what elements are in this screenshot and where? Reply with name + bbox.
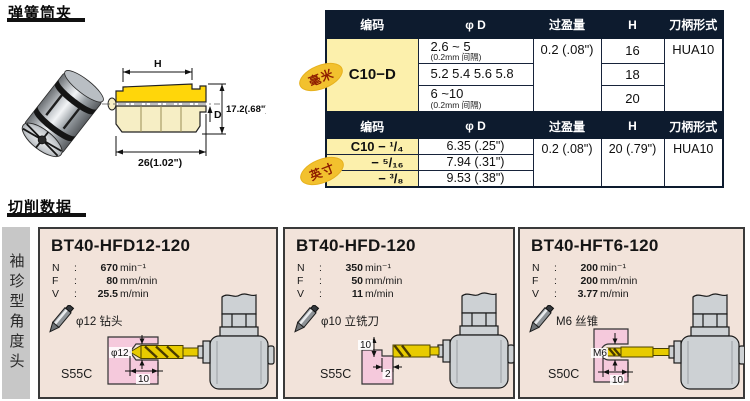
cut-diameter-label: φ12 (111, 348, 129, 359)
angle-head-illustration (669, 294, 744, 389)
inch-table-header-row: 编码 φ D 过盈量 H 刀柄形式 (326, 114, 723, 138)
code-value: C10 − ¹/₄ (326, 138, 418, 154)
spec-value: 200 (566, 262, 598, 275)
dim-h-label: H (154, 58, 162, 70)
shank-value: HUA10 (664, 38, 723, 112)
spec-row-n: N:350min⁻¹ (297, 262, 402, 275)
milling-diagram: 10 2 S55C (286, 282, 514, 396)
sidebar-label: 袖珍型角度头 (6, 253, 27, 373)
h-value: 18 (601, 63, 664, 85)
collets-title-underline (7, 18, 85, 22)
panel-title: BT40-HFD12-120 (51, 236, 190, 256)
inch-table: 编码 φ D 过盈量 H 刀柄形式 C10 − ¹/₄ 6.35 (.25") … (325, 113, 724, 188)
cutting-data-panel-drill: BT40-HFD12-120 N:670min⁻¹ F:80mm/min V:2… (38, 227, 278, 399)
dim-total-width: 26(1.02") (138, 157, 182, 169)
diameter-step-note: (0.2mm 间隔) (431, 53, 529, 62)
tapping-diagram: M6 10 S50C (521, 282, 744, 396)
angle-head-illustration (438, 293, 514, 388)
diameter-step-note: (0.2mm 间隔) (431, 101, 529, 110)
h-value: 16 (601, 38, 664, 63)
material-label: S50C (548, 367, 579, 381)
diameter-value: 9.53 (.38") (418, 170, 533, 187)
interference-value: 0.2 (.08") (533, 138, 601, 187)
metric-table: 编码 φ D 过盈量 H 刀柄形式 C10−D 2.6 ~ 5 (0.2mm 间… (325, 10, 724, 113)
dim-total-height: 17.2(.68") (226, 104, 266, 115)
panel-title: BT40-HFT6-120 (531, 236, 659, 256)
table-row: C10−D 2.6 ~ 5 (0.2mm 间隔) 0.2 (.08") 16 H… (326, 38, 723, 63)
angle-head-illustration (198, 294, 274, 389)
thread-size-label: M6 (593, 348, 607, 359)
col-header-interference: 过盈量 (533, 114, 601, 138)
tap-depth-label: 10 (612, 375, 624, 386)
h-value: 20 (.79") (601, 138, 664, 187)
sidebar-product-category: 袖珍型角度头 (2, 227, 30, 399)
spec-unit: min⁻¹ (120, 262, 146, 275)
shank-value: HUA10 (664, 138, 723, 187)
diameter-range: 2.6 ~ 5 (431, 40, 529, 53)
drilling-diagram: φ12 10 S55C (41, 282, 275, 396)
h-value: 20 (601, 85, 664, 112)
col-header-diameter: φ D (418, 11, 533, 38)
step-width-label: 2 (385, 369, 391, 380)
collet-photo (12, 64, 108, 170)
spec-value: 350 (331, 262, 363, 275)
collet-drawing: H D 17.2(.68") 26(1.02") (96, 52, 266, 180)
col-header-interference: 过盈量 (533, 11, 601, 38)
diameter-cell: 5.2 5.4 5.6 5.8 (418, 63, 533, 85)
dim-d-label: D (214, 109, 222, 121)
cut-depth-label: 10 (138, 374, 150, 385)
panel-title: BT40-HFD-120 (296, 236, 416, 256)
cutting-data-panel-tap: BT40-HFT6-120 N:200min⁻¹ F:200mm/min V:3… (518, 227, 745, 399)
spec-unit: min⁻¹ (365, 262, 391, 275)
cut-depth-label: 10 (360, 340, 372, 351)
diameter-range: 6 ~10 (431, 87, 529, 100)
col-header-shank: 刀柄形式 (664, 11, 723, 38)
col-header-diameter: φ D (418, 114, 533, 138)
catalog-page: 弹簧筒夹 H D (0, 0, 750, 401)
diameter-value: 7.94 (.31") (418, 154, 533, 170)
material-label: S55C (320, 367, 351, 381)
spec-unit: min⁻¹ (600, 262, 626, 275)
col-header-shank: 刀柄形式 (664, 114, 723, 138)
col-header-h: H (601, 11, 664, 38)
material-label: S55C (61, 367, 92, 381)
col-header-h: H (601, 114, 664, 138)
diameter-value: 6.35 (.25") (418, 138, 533, 154)
diameter-cell: 2.6 ~ 5 (0.2mm 间隔) (418, 38, 533, 63)
col-header-code: 编码 (326, 114, 418, 138)
cutting-data-panel-endmill: BT40-HFD-120 N:350min⁻¹ F:50mm/min V:11m… (283, 227, 515, 399)
table-row: C10 − ¹/₄ 6.35 (.25") 0.2 (.08") 20 (.79… (326, 138, 723, 154)
spec-row-n: N:670min⁻¹ (52, 262, 157, 275)
col-header-code: 编码 (326, 11, 418, 38)
diameter-cell: 6 ~10 (0.2mm 间隔) (418, 85, 533, 112)
cutting-title-underline (7, 213, 86, 217)
metric-table-header-row: 编码 φ D 过盈量 H 刀柄形式 (326, 11, 723, 38)
spec-row-n: N:200min⁻¹ (532, 262, 637, 275)
spec-value: 670 (86, 262, 118, 275)
interference-value: 0.2 (.08") (533, 38, 601, 112)
